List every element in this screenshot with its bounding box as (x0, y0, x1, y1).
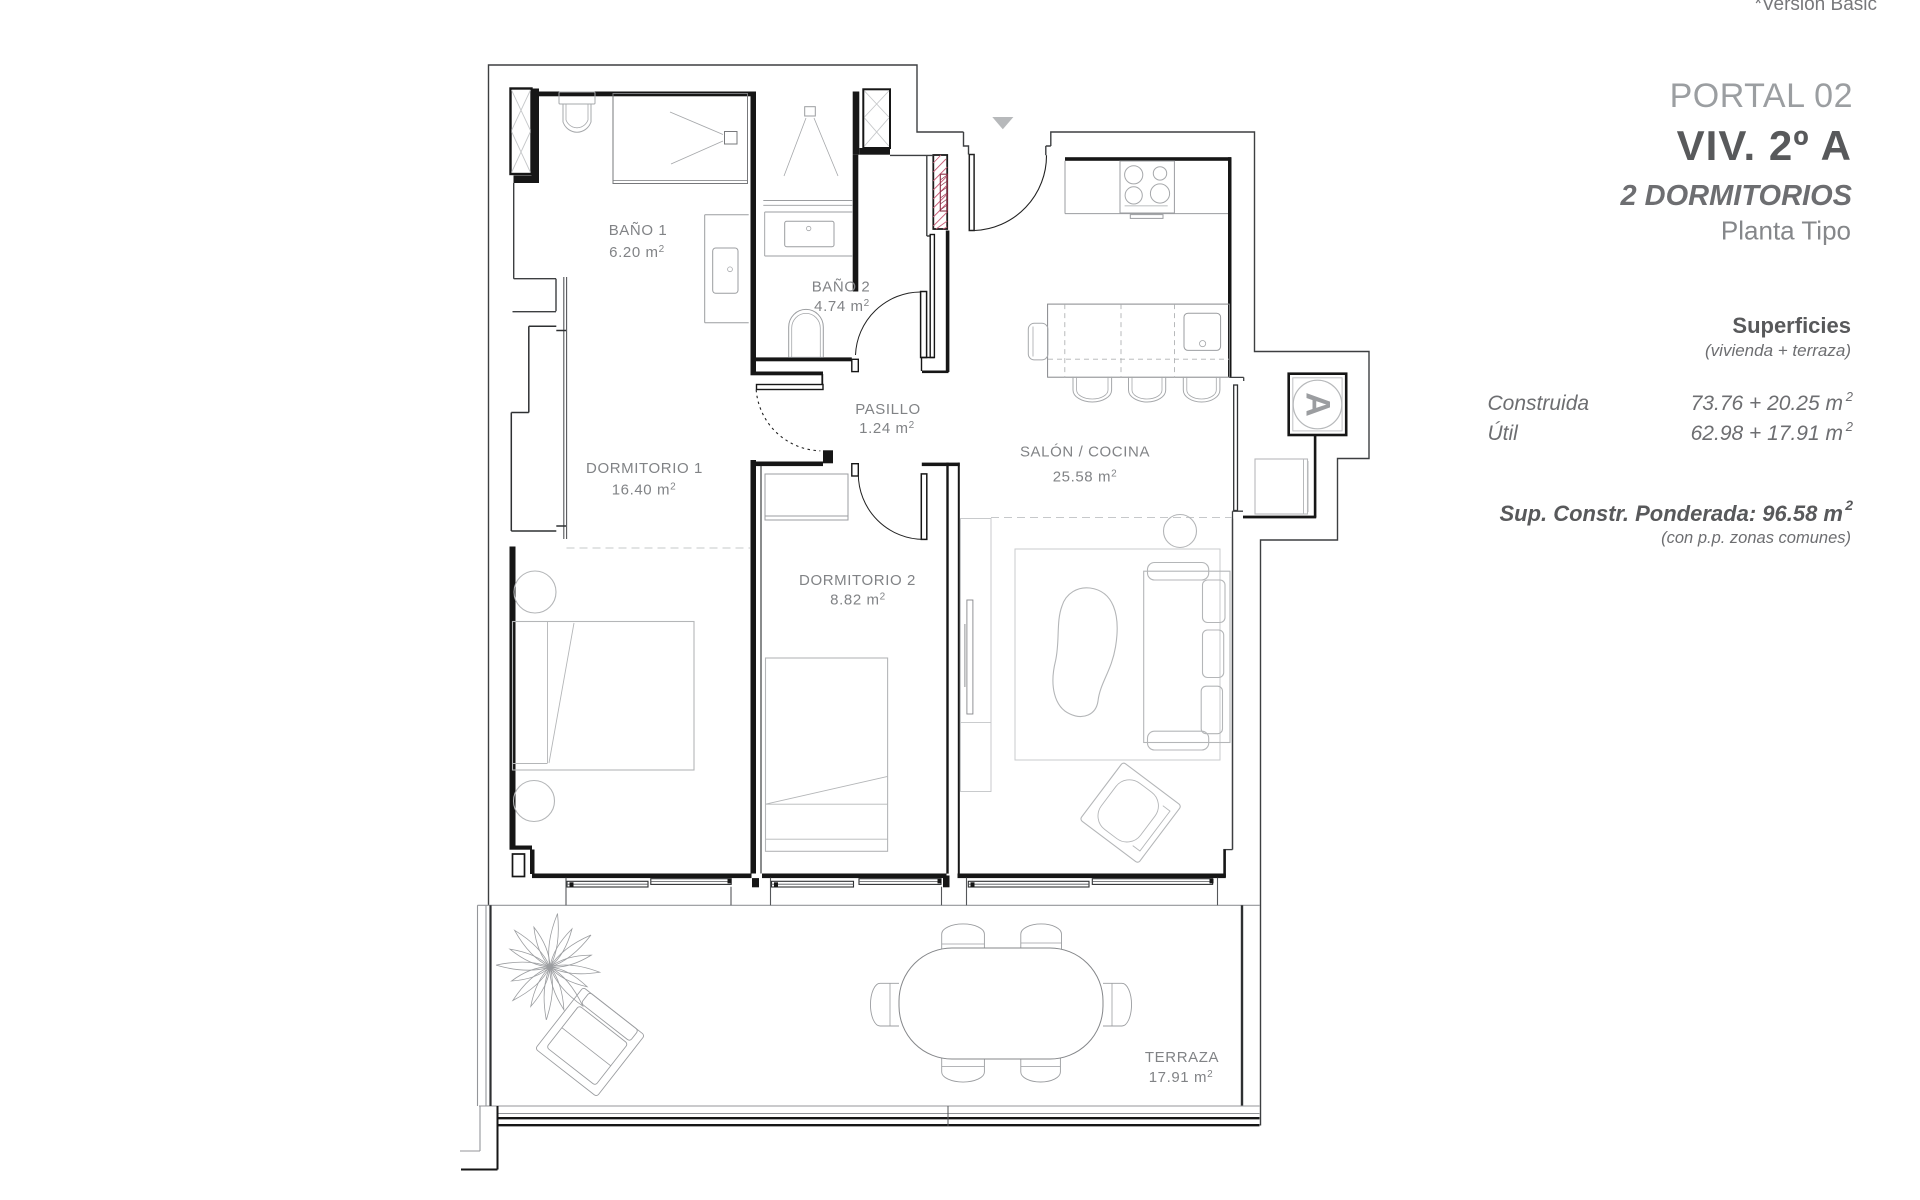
svg-text:17.91 m2: 17.91 m2 (1149, 1069, 1214, 1086)
svg-text:2: 2 (1844, 497, 1853, 513)
svg-text:8.82 m2: 8.82 m2 (830, 592, 886, 609)
svg-text:Sup. Constr. Ponderada: 96.58: Sup. Constr. Ponderada: 96.58 m (1499, 501, 1843, 526)
svg-text:(con p.p. zonas comunes): (con p.p. zonas comunes) (1661, 529, 1851, 547)
svg-text:Planta Tipo: Planta Tipo (1721, 216, 1851, 246)
svg-text:(vivienda + terraza): (vivienda + terraza) (1705, 341, 1851, 360)
svg-text:4.74 m2: 4.74 m2 (814, 298, 870, 315)
svg-text:TERRAZA: TERRAZA (1145, 1049, 1219, 1066)
svg-text:BAÑO 2: BAÑO 2 (812, 279, 871, 296)
svg-text:Superficies: Superficies (1732, 313, 1851, 338)
svg-text:Construida: Construida (1488, 392, 1590, 415)
svg-text:62.98 + 17.91 m: 62.98 + 17.91 m (1691, 422, 1843, 445)
svg-text:73.76 + 20.25 m: 73.76 + 20.25 m (1691, 392, 1843, 415)
svg-text:A: A (1299, 392, 1337, 417)
svg-text:2 DORMITORIOS: 2 DORMITORIOS (1620, 180, 1853, 212)
svg-text:*Versión Basic: *Versión Basic (1754, 0, 1877, 15)
svg-text:PASILLO: PASILLO (855, 401, 921, 418)
svg-text:DORMITORIO 1: DORMITORIO 1 (586, 460, 703, 477)
svg-text:Útil: Útil (1488, 422, 1520, 445)
svg-text:PORTAL 02: PORTAL 02 (1670, 77, 1853, 115)
svg-text:1.24 m2: 1.24 m2 (859, 420, 915, 437)
svg-text:SALÓN / COCINA: SALÓN / COCINA (1020, 444, 1150, 461)
svg-text:DORMITORIO 2: DORMITORIO 2 (799, 572, 916, 589)
svg-text:6.20 m2: 6.20 m2 (609, 244, 665, 261)
svg-text:2: 2 (1845, 389, 1854, 404)
svg-text:2: 2 (1845, 419, 1854, 434)
svg-text:BAÑO 1: BAÑO 1 (609, 222, 668, 239)
svg-text:16.40 m2: 16.40 m2 (612, 482, 677, 499)
svg-text:VIV. 2º A: VIV. 2º A (1677, 122, 1852, 169)
svg-text:25.58 m2: 25.58 m2 (1053, 469, 1118, 486)
